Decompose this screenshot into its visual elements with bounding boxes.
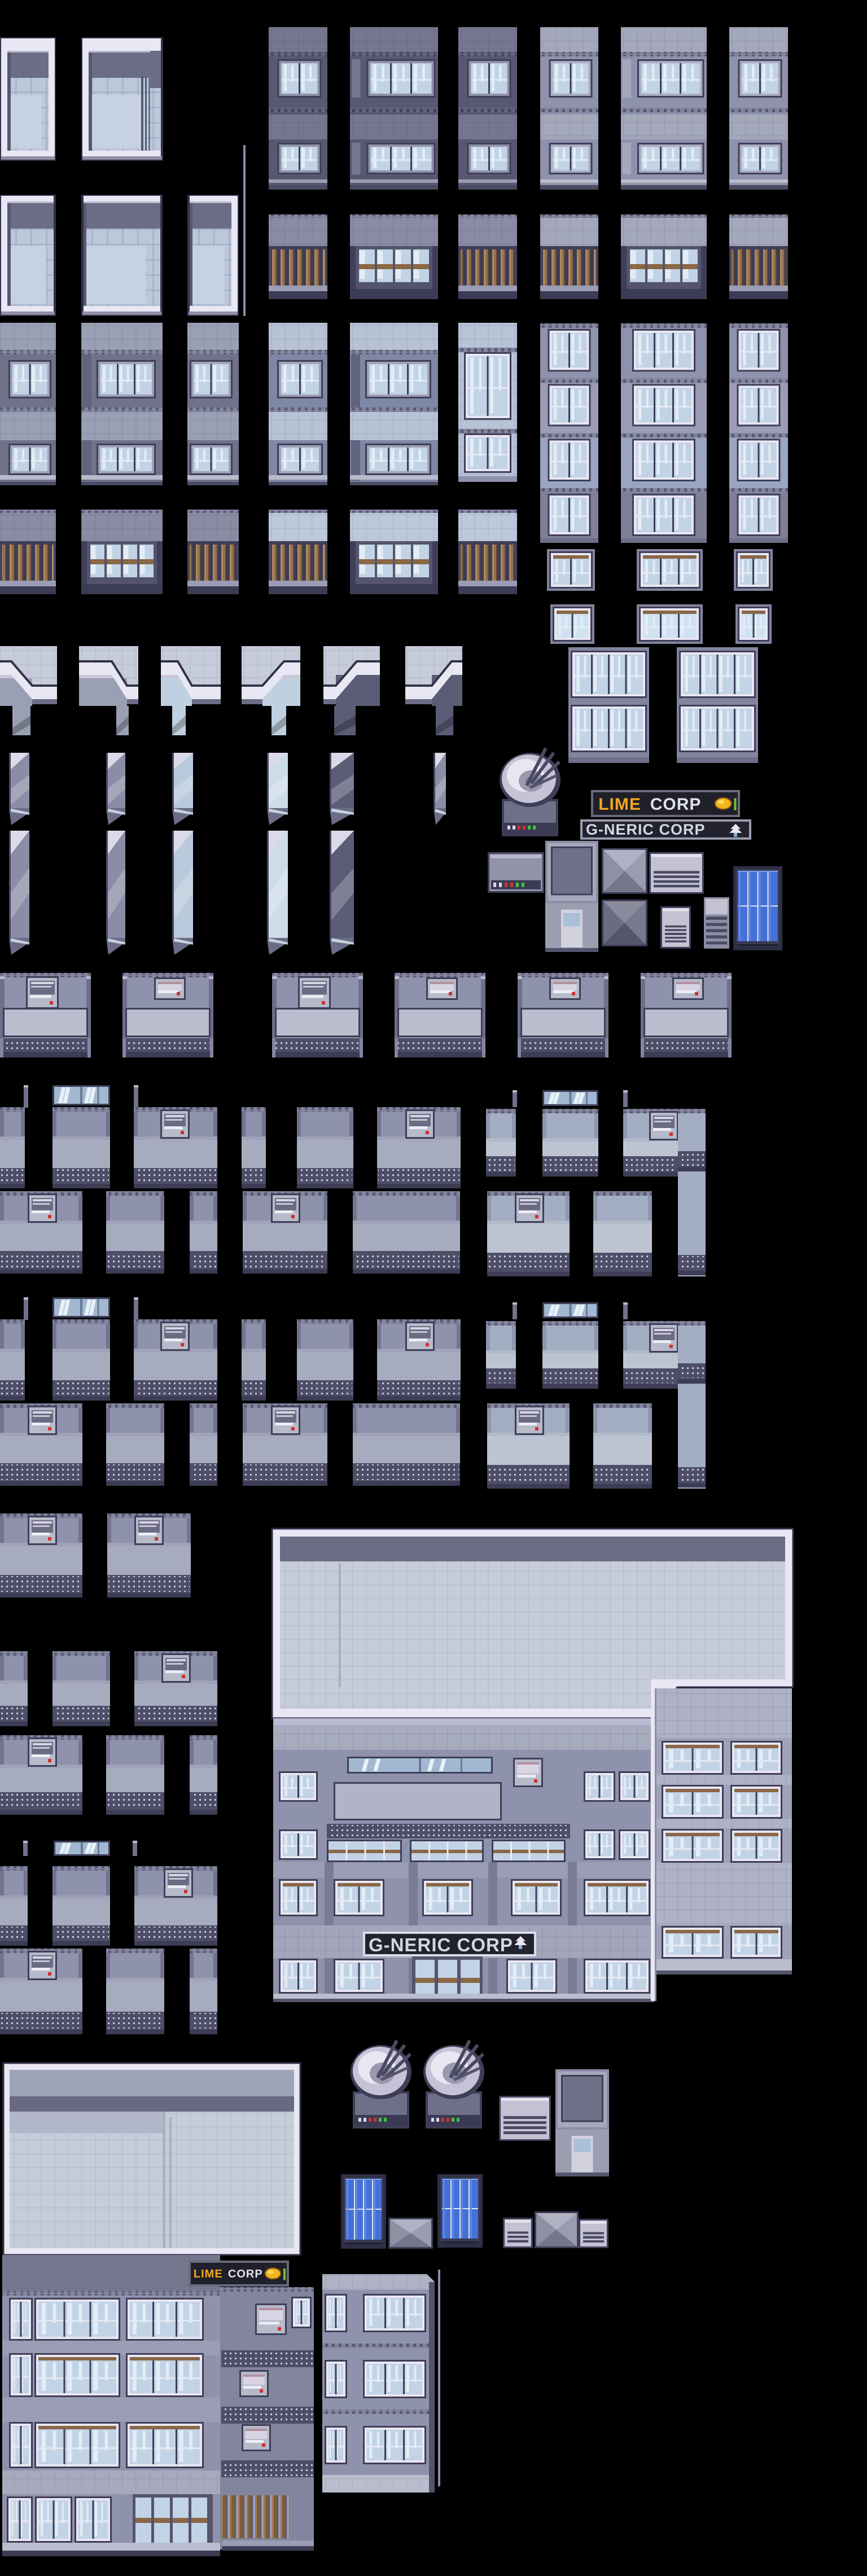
svg-text:LIME: LIME bbox=[598, 795, 641, 814]
svg-text:LIME: LIME bbox=[194, 2268, 223, 2280]
svg-text:G-NERIC CORP: G-NERIC CORP bbox=[369, 1934, 513, 1955]
svg-text:CORP: CORP bbox=[228, 2268, 263, 2280]
svg-text:G-NERIC CORP: G-NERIC CORP bbox=[586, 821, 706, 838]
svg-text:CORP: CORP bbox=[650, 795, 702, 814]
